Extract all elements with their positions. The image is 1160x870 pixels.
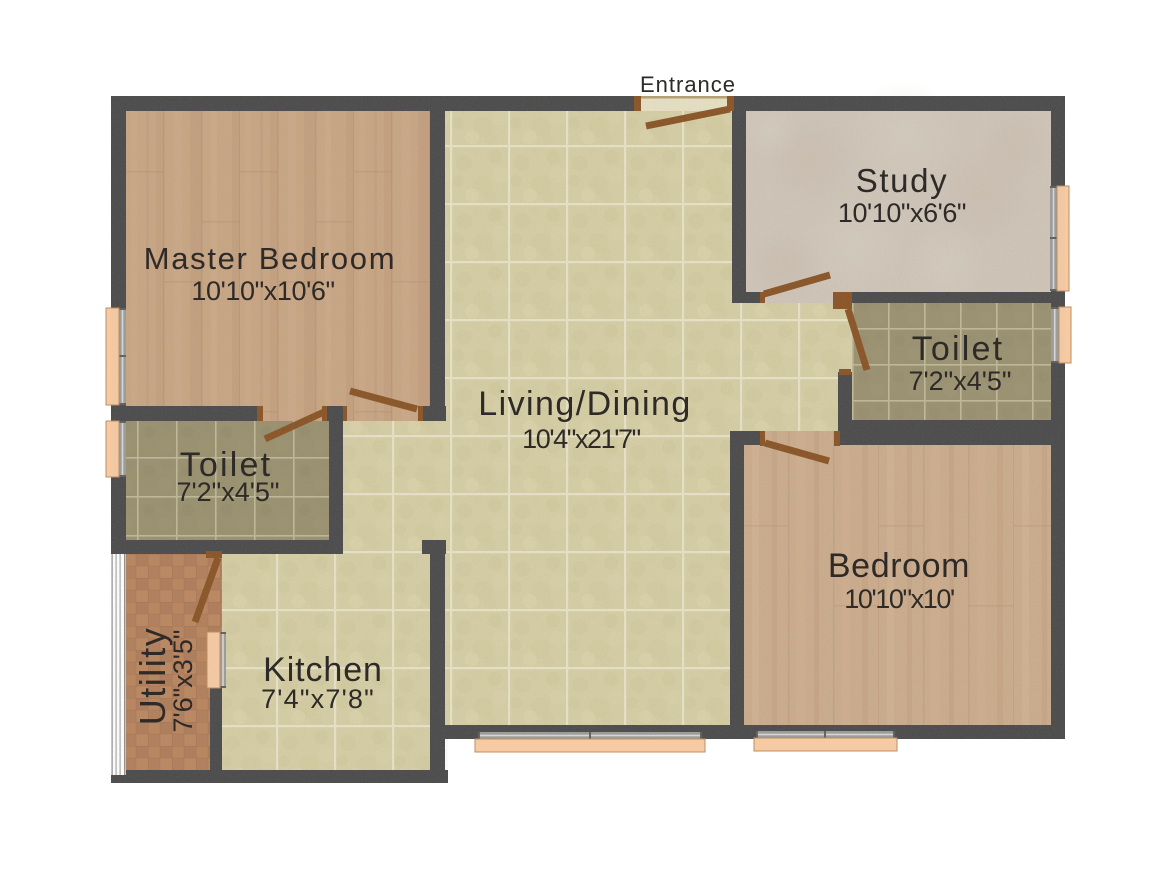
svg-text:10'10"x10': 10'10"x10' [844,584,954,614]
svg-text:Utility: Utility [132,627,173,726]
svg-text:7'6"x3'5": 7'6"x3'5" [168,629,198,732]
svg-text:7'2"x4'5": 7'2"x4'5" [908,366,1011,396]
svg-text:Study: Study [856,162,948,199]
svg-text:10'10"x10'6": 10'10"x10'6" [191,276,334,306]
svg-text:7'4"x7'8": 7'4"x7'8" [261,684,375,714]
svg-text:Master Bedroom: Master Bedroom [144,241,396,276]
svg-text:10'4"x21'7": 10'4"x21'7" [522,424,640,454]
svg-text:Living/Dining: Living/Dining [478,385,692,423]
svg-text:Toilet: Toilet [912,330,1005,368]
svg-text:Bedroom: Bedroom [828,547,970,585]
svg-text:7'2"x4'5": 7'2"x4'5" [176,477,279,507]
svg-text:10'10"x6'6": 10'10"x6'6" [838,198,966,228]
svg-text:Entrance: Entrance [640,72,736,97]
